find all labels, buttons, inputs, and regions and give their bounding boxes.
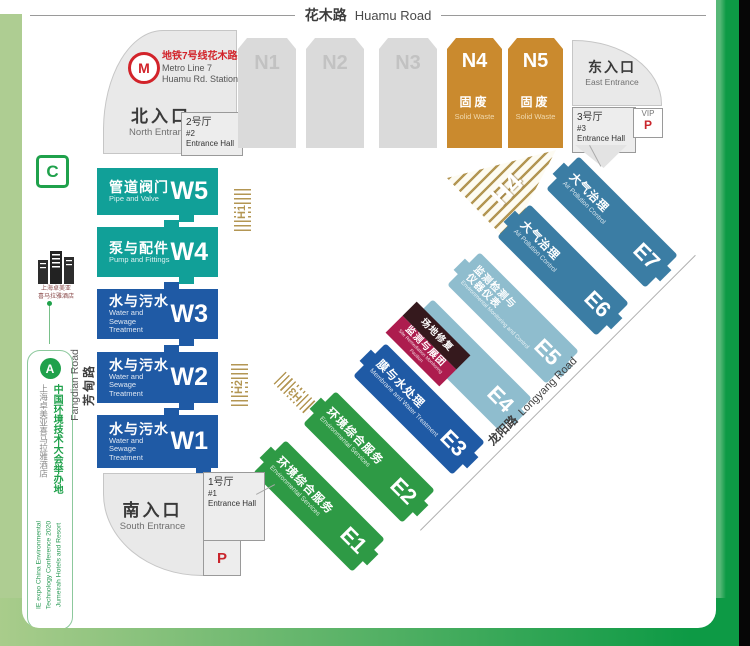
east-entrance-en: East Entrance — [573, 77, 651, 88]
entrance-hall-2[interactable]: 2号厅 #2 Entrance Hall — [181, 112, 243, 156]
venue-map: 花木路Huamu Road M 地铁7号线花木路站 Metro Line 7 H… — [22, 0, 716, 628]
venue-zh-text: 中国环境技术大会举办地 上海卓美亚喜马拉雅酒店 — [38, 384, 62, 506]
hotel-name-line2: 喜马拉雅酒店 — [26, 294, 86, 302]
entrance-hall-1[interactable]: 1号厅 #1 Entrance Hall — [203, 472, 265, 541]
hall-e1-zh: 环境综合服务 — [273, 455, 351, 533]
hall-w2-code: W2 — [171, 363, 209, 392]
hall-n5[interactable]: N5 固废 Solid Waste — [508, 38, 563, 148]
a-logo: A — [40, 358, 61, 379]
hall-e7-zh: 大气治理 — [566, 171, 644, 249]
hall-w4-text: 泵与配件 Pump and Fittings — [109, 240, 171, 265]
hall-w5-zh: 管道阀门 — [109, 179, 171, 195]
hall-w2-zh: 水与污水 — [109, 357, 171, 373]
hall-n5-code: N5 — [523, 50, 549, 73]
hall-w1-en: Water and Sewage Treatment — [109, 437, 171, 463]
marker-h1: H1 — [234, 189, 251, 234]
hall-w5[interactable]: 管道阀门 Pipe and Valve W5 — [97, 168, 218, 215]
hall-w2-text: 水与污水 Water and Sewage Treatment — [109, 357, 171, 399]
hall-w4-zh: 泵与配件 — [109, 240, 171, 256]
hall-w5-code: W5 — [171, 177, 209, 206]
huamu-road-label: 花木路Huamu Road — [305, 5, 432, 25]
c-logo-letter: C — [46, 162, 58, 182]
conference-venue-badge: A 中国环境技术大会举办地 上海卓美亚喜马拉雅酒店 IE expo China … — [27, 350, 73, 628]
hall-e6-text: 大气治理 Air Pollution Control — [512, 219, 595, 302]
hall-n1[interactable]: N1 — [238, 38, 296, 148]
hall2-zh: 2号厅 — [186, 116, 238, 129]
south-entrance-en: South Entrance — [104, 521, 201, 533]
fangdian-road-zh: 芳甸路 — [82, 310, 97, 460]
hotel-building-icon — [34, 248, 78, 289]
hall-w4-code: W4 — [171, 238, 209, 267]
metro-logo-letter: M — [138, 60, 150, 76]
frame-edge-strip — [739, 0, 750, 646]
hall-n1-code: N1 — [254, 52, 280, 75]
huamu-road-en: Huamu Road — [355, 8, 432, 23]
hall-n2-code: N2 — [322, 52, 348, 75]
hotel-name-caption: 上海卓美亚 喜马拉雅酒店 — [26, 286, 86, 302]
a-logo-letter: A — [46, 362, 55, 376]
parking-icon: P — [217, 550, 227, 567]
south-parking[interactable]: P — [203, 540, 241, 576]
marker-h2: H2 — [231, 364, 248, 409]
hall-w1-zh: 水与污水 — [109, 421, 171, 437]
hall-e6-en: Air Pollution Control — [512, 228, 586, 302]
hall-e1-en: Environmental Services — [268, 464, 342, 538]
hall-n4[interactable]: N4 固废 Solid Waste — [447, 38, 502, 148]
hall-e2-text: 环境综合服务 Environmental Services — [318, 406, 401, 489]
hall3-zh: 3号厅 — [577, 111, 631, 124]
marker-h3-label: H3 — [286, 384, 306, 404]
venue-en-line1: IE expo China Environmental — [35, 506, 45, 624]
hall-n5-en: Solid Waste — [516, 112, 556, 121]
hall-w4[interactable]: 泵与配件 Pump and Fittings W4 — [97, 227, 218, 277]
fangdian-road-label: Fangdian Road 芳甸路 — [69, 310, 99, 460]
marker-h1-label: H1 — [237, 203, 249, 219]
hall-w3-en: Water and Sewage Treatment — [109, 309, 171, 335]
c-logo: C — [36, 155, 69, 188]
hall-e5-zh2: 仪器仪表 — [464, 272, 540, 348]
hall-w2[interactable]: 水与污水 Water and Sewage Treatment W2 — [97, 352, 218, 403]
hotel-name-line1: 上海卓美亚 — [26, 286, 86, 294]
south-entrance-label: 南入口 South Entrance — [104, 500, 201, 533]
hall-n3[interactable]: N3 — [379, 38, 437, 148]
hall-n3-code: N3 — [395, 52, 421, 75]
hall-w3[interactable]: 水与污水 Water and Sewage Treatment W3 — [97, 289, 218, 339]
venue-en-line3: Jumeirah Hotels and Resort — [55, 506, 65, 624]
hall1-num: #1 — [208, 489, 260, 499]
hall-n4-en: Solid Waste — [455, 112, 495, 121]
hotel-connector-line — [49, 304, 50, 344]
hall-n4-code: N4 — [462, 50, 488, 73]
venue-en-line2: Technology Conference 2020 — [45, 506, 55, 624]
metro-en-2: Huamu Rd. Station — [162, 74, 248, 85]
hall-w3-code: W3 — [171, 300, 209, 329]
hall-n2[interactable]: N2 — [306, 38, 364, 148]
venue-zh-main: 中国环境技术大会举办地 — [51, 384, 63, 506]
east-entrance-zh: 东入口 — [573, 59, 651, 77]
road-line-right — [441, 15, 706, 16]
road-line-left — [30, 15, 295, 16]
hall-n5-zh: 固废 — [520, 93, 550, 110]
huamu-road-zh: 花木路 — [305, 7, 347, 23]
hall-w4-en: Pump and Fittings — [109, 256, 171, 265]
hall-w5-en: Pipe and Valve — [109, 195, 171, 204]
hall2-num: #2 — [186, 129, 238, 139]
east-entrance-area[interactable]: 东入口 East Entrance — [572, 40, 662, 106]
vip-parking[interactable]: VIP P — [633, 108, 663, 138]
hall-e1-text: 环境综合服务 Environmental Services — [268, 455, 351, 538]
hall3-en: Entrance Hall — [577, 134, 631, 144]
venue-en-wrap: IE expo China Environmental Technology C… — [28, 506, 72, 624]
hall3-num: #3 — [577, 124, 631, 134]
hall-n4-zh: 固废 — [459, 93, 489, 110]
fangdian-road-en: Fangdian Road — [69, 310, 82, 460]
hall-e6-zh: 大气治理 — [517, 219, 595, 297]
hall1-en: Entrance Hall — [208, 499, 260, 509]
hall-w3-text: 水与污水 Water and Sewage Treatment — [109, 293, 171, 335]
hall-w5-text: 管道阀门 Pipe and Valve — [109, 179, 171, 204]
metro-icon: M — [128, 52, 160, 84]
venue-en-text: IE expo China Environmental Technology C… — [35, 506, 66, 624]
south-entrance-area[interactable]: 南入口 South Entrance — [103, 473, 204, 576]
hall-e2-en: Environmental Services — [318, 415, 392, 489]
hall-e7-en: Air Pollution Control — [561, 180, 635, 254]
south-entrance-zh: 南入口 — [104, 500, 201, 521]
hall-w1[interactable]: 水与污水 Water and Sewage Treatment W1 — [97, 415, 218, 468]
huamu-road: 花木路Huamu Road — [30, 6, 706, 24]
vip-parking-icon: P — [634, 119, 662, 132]
hall-e2-zh: 环境综合服务 — [323, 406, 401, 484]
venue-zh-sub: 上海卓美亚喜马拉雅酒店 — [38, 384, 48, 506]
hall-w1-text: 水与污水 Water and Sewage Treatment — [109, 421, 171, 463]
metro-station-label: 地铁7号线花木路站 Metro Line 7 Huamu Rd. Station — [162, 51, 248, 85]
hall-w3-zh: 水与污水 — [109, 293, 171, 309]
hall1-zh: 1号厅 — [208, 476, 260, 489]
hall-e7-text: 大气治理 Air Pollution Control — [561, 171, 644, 254]
hall-w1-code: W1 — [171, 427, 209, 456]
metro-zh: 地铁7号线花木路站 — [162, 51, 248, 63]
hall2-en: Entrance Hall — [186, 139, 238, 149]
metro-en-1: Metro Line 7 — [162, 63, 248, 74]
east-entrance-label: 东入口 East Entrance — [573, 59, 651, 87]
marker-h2-label: H2 — [234, 378, 246, 394]
hall-w2-en: Water and Sewage Treatment — [109, 373, 171, 399]
